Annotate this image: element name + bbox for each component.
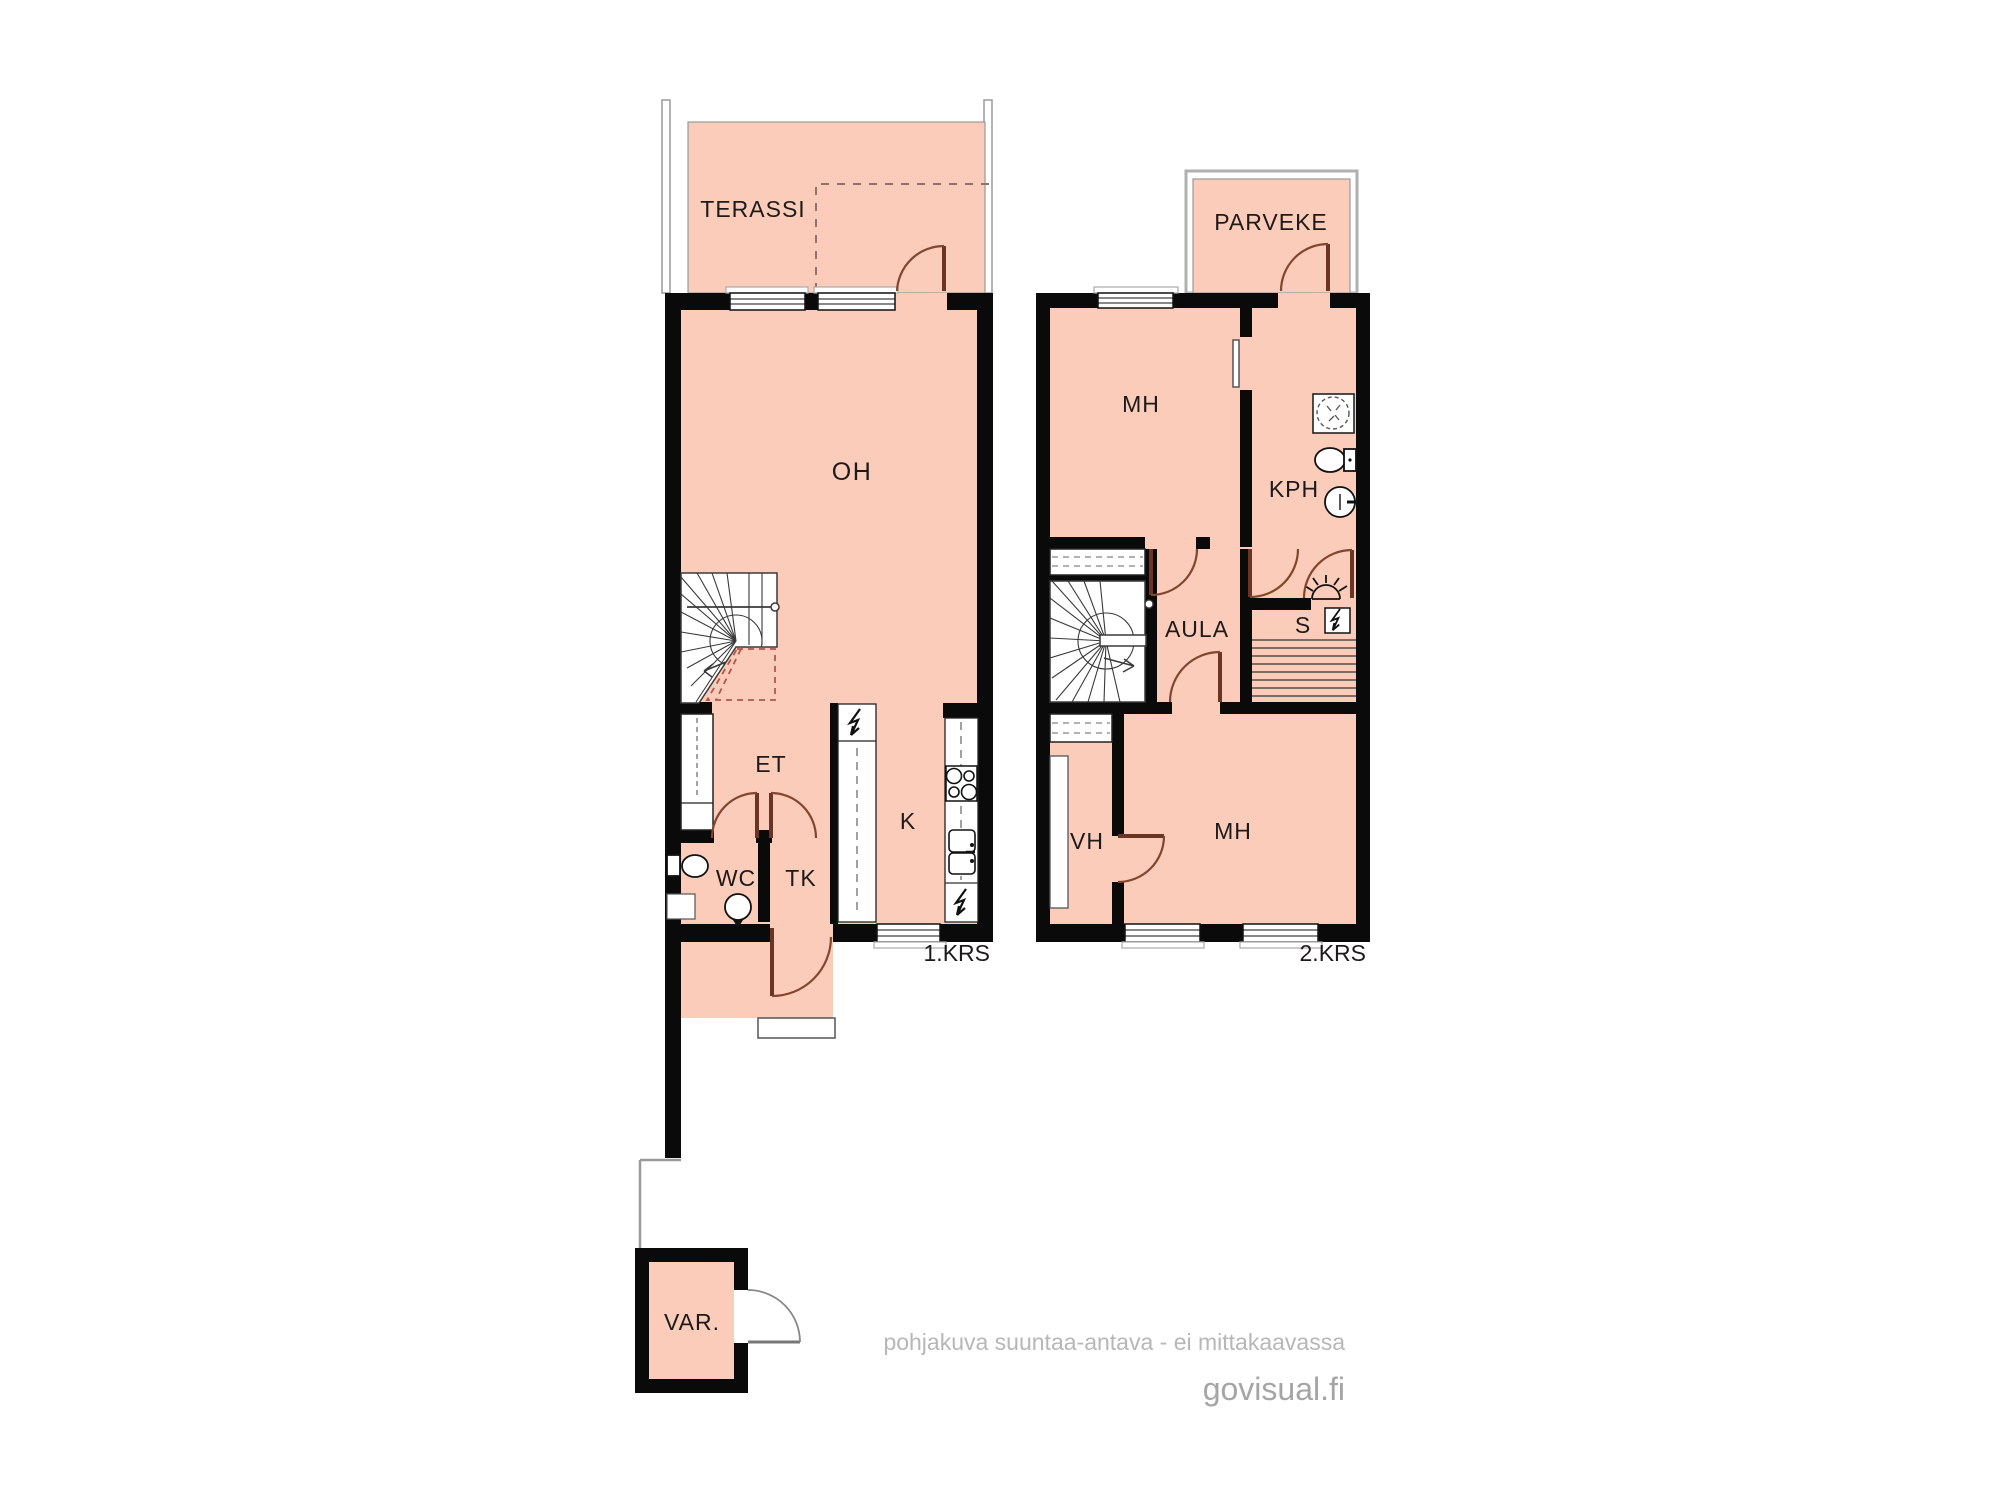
- floor1-label: 1.KRS: [924, 940, 990, 966]
- washing-machine-icon: [1313, 394, 1354, 433]
- room-label-oh: OH: [832, 458, 873, 486]
- toilet-icon: [1315, 448, 1356, 472]
- terrace-door-opening: [895, 293, 947, 310]
- floor1-plan: TERASSI OH ET WC TK K 1.KRS VAR.: [635, 100, 993, 1393]
- stove-icon: [946, 766, 977, 801]
- floor-plan-canvas: TERASSI OH ET WC TK K 1.KRS VAR.: [0, 0, 2000, 1500]
- wc-cabinet: [667, 894, 695, 919]
- room-label-et: ET: [755, 751, 786, 777]
- room-label-tk: TK: [785, 865, 816, 891]
- balcony-door-opening: [1278, 293, 1330, 308]
- porch-floor: [681, 942, 833, 1018]
- sliding-door: [1233, 337, 1252, 390]
- room-label-mh-lower: MH: [1214, 818, 1252, 844]
- room-label-k: K: [900, 808, 916, 834]
- floor-plan-page: TERASSI OH ET WC TK K 1.KRS VAR.: [0, 0, 2000, 1500]
- room-label-kph: KPH: [1269, 476, 1319, 502]
- room-label-parveke: PARVEKE: [1214, 209, 1328, 235]
- et-wardrobe: [681, 714, 713, 830]
- stair-closet: [1050, 549, 1145, 575]
- room-label-aula: AULA: [1165, 616, 1229, 642]
- toilet-icon: [667, 855, 708, 877]
- terrace-rail-left: [662, 100, 670, 293]
- room-label-var: VAR.: [664, 1309, 720, 1335]
- kitchen-counter: [945, 718, 978, 922]
- footer: pohjakuva suuntaa-antava - ei mittakaava…: [883, 1329, 1345, 1407]
- floor2-plan: PARVEKE MH KPH AULA S VH MH 2.KRS: [1036, 171, 1370, 966]
- room-label-vh: VH: [1070, 828, 1104, 854]
- room-label-terassi: TERASSI: [700, 196, 805, 222]
- porch-step: [758, 1018, 835, 1038]
- entry-door-opening: [770, 924, 833, 942]
- floor2-label: 2.KRS: [1300, 940, 1366, 966]
- room-label-s: S: [1295, 612, 1311, 638]
- kitchen-sink-icon: [949, 830, 975, 874]
- yard-and-storage: [635, 1160, 800, 1393]
- room-label-wc: WC: [716, 865, 756, 891]
- electrical-column: [838, 704, 876, 922]
- door-arc: [748, 1290, 800, 1342]
- storage-door-opening: [734, 1290, 748, 1343]
- footer-brand: govisual.fi: [1203, 1371, 1345, 1407]
- footer-disclaimer: pohjakuva suuntaa-antava - ei mittakaava…: [883, 1329, 1345, 1355]
- staircase-floor2: [1050, 549, 1153, 702]
- room-label-mh-upper: MH: [1122, 391, 1160, 417]
